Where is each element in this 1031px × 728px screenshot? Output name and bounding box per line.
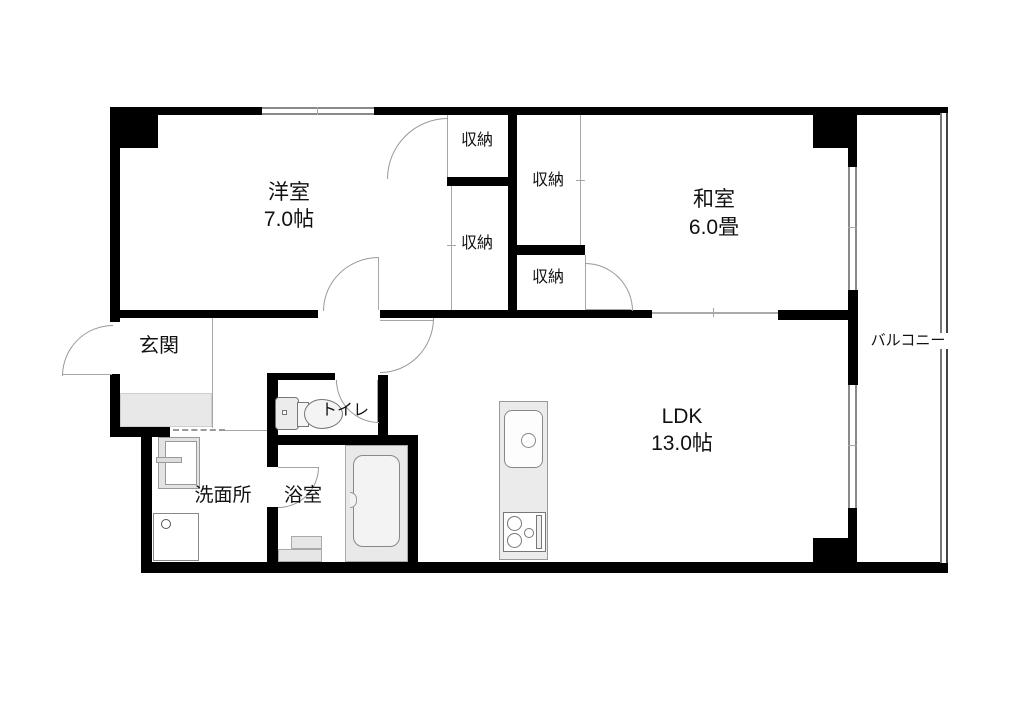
japanese-closet-door-arc [585,263,633,311]
western-room-size: 7.0帖 [219,209,359,231]
balcony-label: バルコニー [860,333,956,349]
bathroom-step-upper [291,536,322,549]
entrance-label: 玄関 [119,336,199,357]
washroom-label: 洗面所 [191,486,255,506]
window-japanese-tick [848,227,857,228]
wall-toilet-top [267,373,335,380]
western-room-door-arc [323,257,379,311]
washroom-boundary-line [225,430,267,431]
wall-left-upper [110,107,120,322]
wall-left-lower [110,374,120,433]
wall-closet-divider-vertical [508,115,517,318]
wall-bottom [141,562,948,573]
slider-center-tick [713,308,714,317]
washbasin [153,513,199,561]
entrance-hall-step-line [212,318,213,428]
entrance-door-arc [62,325,113,376]
bathroom-door-panel [278,467,318,468]
window-western-room-top [262,107,374,115]
window-ldk-tick [848,445,857,446]
toilet-label: トイレ [317,403,373,420]
washroom-sliding-door [173,429,225,431]
ldk-door-panel [380,320,433,321]
pillar-top-right [813,107,857,148]
slider-japanese-ldk [652,312,778,314]
window-japanese-room [848,167,857,290]
washing-machine-door [165,441,197,485]
closet-japanese-top-label: 収納 [520,173,576,190]
wall-japanese-closet-divider [508,245,585,255]
toilet-door-panel [377,380,378,422]
entrance-step [120,393,212,427]
stove-grill [536,515,542,549]
kitchen-sink-drain [521,433,536,448]
wall-service-left-lower [267,507,278,562]
washbasin-drain [161,519,171,529]
wall-western-closet-divider [447,177,517,186]
pillar-bottom-right [813,538,857,562]
closet-western-bottom-label: 収納 [449,236,505,253]
closet-japanese-bottom-label: 収納 [520,270,576,287]
wall-entrance-corner [110,427,170,437]
western-room-label: 洋室 [219,182,359,204]
floor-plan: 洋室 7.0帖 和室 6.0畳 LDK 13.0帖 玄関 トイレ 洗面所 浴室 … [0,0,1031,728]
ldk-size: 13.0帖 [612,433,752,455]
stove-burner-3 [524,528,534,538]
entrance-door-panel [62,374,112,375]
western-room-door-panel [378,257,379,310]
bathroom-step-lower [278,549,322,562]
wall-washroom-left [141,437,152,573]
closet-front-japanese-tick [576,180,585,181]
stove-burner-2 [507,533,522,548]
wall-bathroom-right [408,435,418,562]
japanese-closet-door-panel [585,309,631,310]
wall-right-seg-upper [848,148,857,167]
window-ldk [848,385,857,508]
wall-right-seg-lower [848,508,857,538]
toilet-tank [275,397,299,430]
japanese-room-label: 和室 [644,189,784,211]
bathroom-label: 浴室 [283,486,323,506]
closet-western-top-label: 収納 [449,133,505,150]
ldk-door-arc [380,318,434,373]
western-closet-door-arc [387,118,448,179]
washing-machine-handle [156,457,182,463]
window-top-center-tick [317,107,318,115]
toilet-tank-button [282,410,287,415]
stove-burner-1 [507,516,522,531]
wall-western-room-bottom [110,310,318,318]
wall-top-right [374,107,948,115]
bathtub [353,455,400,547]
wall-toilet-right [378,375,388,440]
wall-bathroom-top [267,435,418,445]
japanese-room-size: 6.0畳 [644,217,784,239]
wall-japanese-room-bottom [778,310,848,320]
ldk-label: LDK [612,406,752,428]
wall-right-seg-middle [848,290,858,385]
